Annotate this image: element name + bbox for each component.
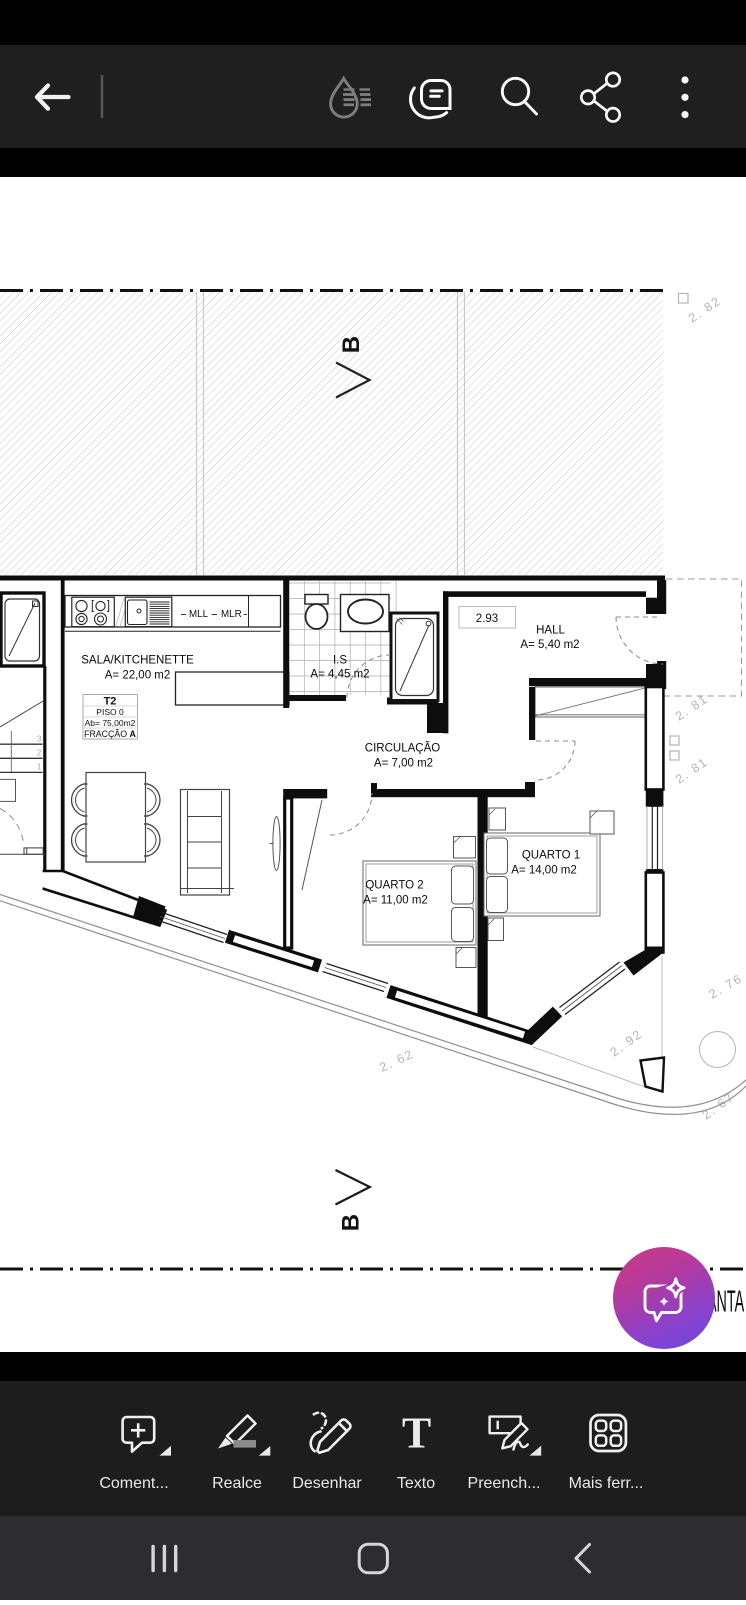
svg-text:A= 4,45 m2: A= 4,45 m2 <box>310 669 369 681</box>
svg-text:2: 2 <box>37 748 42 758</box>
svg-text:A= 22,00 m2: A= 22,00 m2 <box>105 670 171 682</box>
svg-text:A= 14,00 m2: A= 14,00 m2 <box>511 865 577 877</box>
svg-text:2. 76: 2. 76 <box>707 971 745 1001</box>
svg-text:QUARTO 1: QUARTO 1 <box>522 850 580 862</box>
svg-text:B: B <box>338 1214 365 1231</box>
svg-text:HALL: HALL <box>536 625 565 637</box>
svg-text:MLR: MLR <box>221 609 242 620</box>
svg-text:PISO 0: PISO 0 <box>96 707 124 717</box>
svg-text:B: B <box>338 336 365 353</box>
svg-text:A= 7,00 m2: A= 7,00 m2 <box>374 758 433 770</box>
svg-text:2. 82: 2. 82 <box>686 294 724 326</box>
svg-text:FRACÇÃO A: FRACÇÃO A <box>84 729 136 739</box>
svg-text:2. 62: 2. 62 <box>377 1047 416 1075</box>
svg-text:I.S: I.S <box>333 655 347 667</box>
svg-text:SALA/KITCHENETTE: SALA/KITCHENETTE <box>81 655 194 667</box>
svg-text:A= 11,00 m2: A= 11,00 m2 <box>363 895 428 907</box>
svg-text:MLL: MLL <box>189 609 209 620</box>
svg-text:T2: T2 <box>104 696 117 708</box>
svg-text:CIRCULAÇÃO: CIRCULAÇÃO <box>365 742 440 755</box>
svg-text:QUARTO 2: QUARTO 2 <box>365 880 423 892</box>
svg-text:T: T <box>402 1409 431 1458</box>
svg-text:2. 92: 2. 92 <box>608 1027 646 1060</box>
svg-text:3: 3 <box>37 734 42 744</box>
svg-text:1: 1 <box>37 762 42 772</box>
svg-text:2.93: 2.93 <box>476 613 498 625</box>
svg-text:Ab= 75,00m2: Ab= 75,00m2 <box>85 718 136 728</box>
svg-text:A= 5,40 m2: A= 5,40 m2 <box>520 639 579 651</box>
